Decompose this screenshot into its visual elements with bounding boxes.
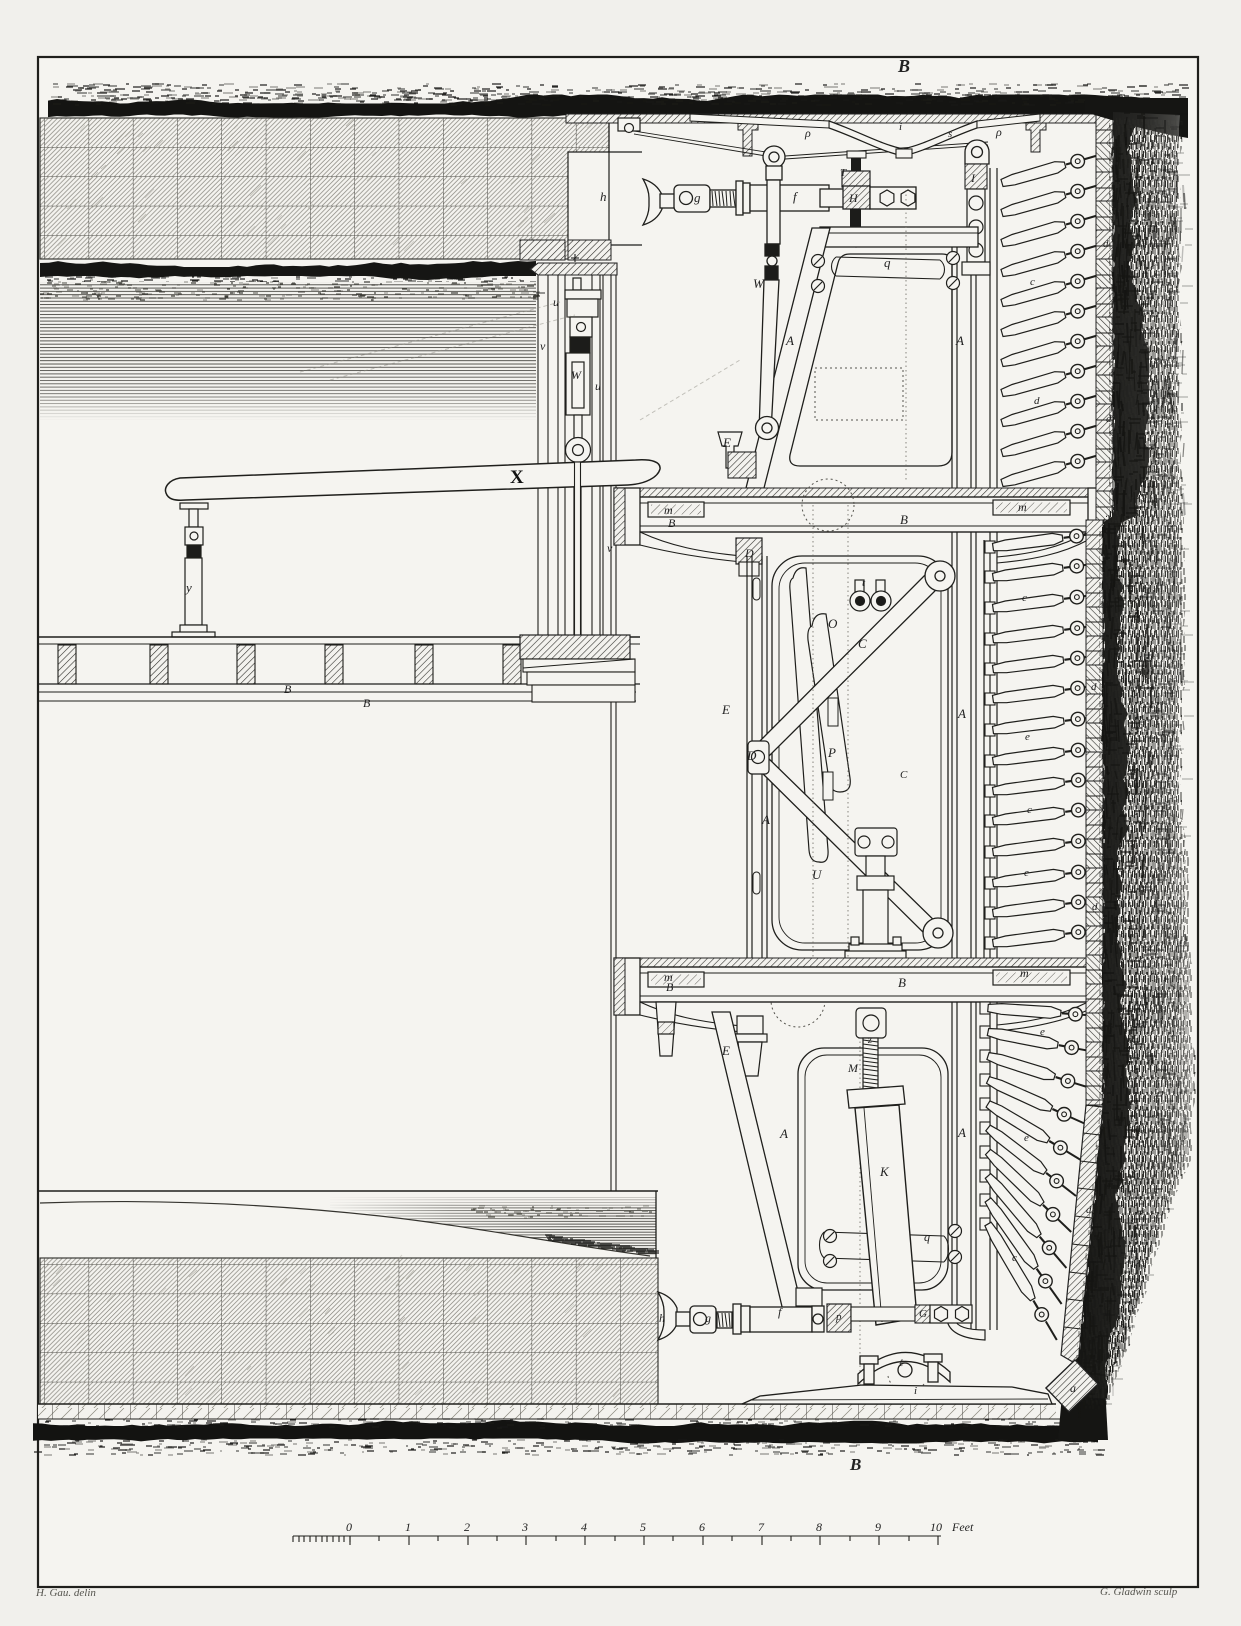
svg-text:6: 6 [699,1520,705,1534]
svg-text:G. Gladwin sculp: G. Gladwin sculp [1100,1586,1178,1598]
svg-text:B: B [668,516,676,530]
svg-text:B: B [666,980,674,994]
svg-text:c: c [1022,592,1027,604]
svg-text:B: B [849,1455,861,1474]
svg-text:C: C [858,636,867,651]
svg-text:A: A [779,1126,788,1141]
svg-text:s: s [948,128,952,140]
svg-text:5: 5 [640,1520,646,1534]
svg-text:9: 9 [875,1520,881,1534]
svg-text:B: B [284,682,292,696]
svg-text:ℓ: ℓ [899,1358,903,1369]
svg-text:B: B [897,56,910,76]
svg-text:W: W [753,276,765,291]
svg-text:m: m [1018,500,1027,514]
svg-text:A: A [785,333,794,348]
svg-text:G: G [919,1308,927,1320]
svg-text:p: p [835,1311,842,1323]
svg-text:B: B [898,975,906,990]
svg-text:q: q [924,1230,930,1244]
svg-text:h: h [600,189,607,204]
svg-text:q: q [884,255,891,270]
svg-text:g: g [694,190,701,205]
svg-text:W: W [571,368,582,382]
svg-text:C: C [900,769,908,781]
svg-text:T: T [840,167,847,179]
svg-text:B: B [363,696,371,710]
svg-text:A: A [957,706,966,721]
svg-text:d: d [1086,1204,1092,1216]
svg-text:a: a [1070,1381,1076,1395]
svg-text:e: e [1024,1132,1029,1144]
svg-text:c: c [1012,1252,1017,1264]
svg-text:h: h [659,1311,665,1325]
svg-text:O: O [828,616,838,631]
svg-text:A: A [761,812,770,827]
svg-text:u: u [595,379,601,393]
svg-text:7: 7 [758,1520,765,1534]
svg-text:P: P [827,745,836,760]
svg-text:10: 10 [930,1520,942,1534]
svg-text:E: E [721,1043,730,1058]
svg-text:0: 0 [346,1520,352,1534]
svg-text:d: d [1106,413,1112,425]
svg-text:e: e [1024,867,1029,879]
svg-text:y: y [184,580,192,595]
svg-text:E: E [721,702,730,717]
svg-text:1: 1 [405,1520,411,1534]
svg-text:D: D [744,546,754,560]
svg-text:ρ: ρ [995,125,1002,139]
svg-text:z: z [867,1035,872,1046]
svg-text:3: 3 [521,1520,528,1534]
svg-text:i: i [899,121,902,133]
svg-text:ρ: ρ [804,126,811,140]
svg-text:c: c [1027,804,1032,816]
svg-text:i: i [914,1385,917,1397]
svg-text:K: K [879,1164,890,1179]
svg-text:e: e [1025,731,1030,743]
svg-text:2: 2 [464,1520,470,1534]
svg-text:m: m [664,503,673,517]
svg-text:H. Gau. delin: H. Gau. delin [35,1587,96,1599]
svg-text:Feet: Feet [951,1520,974,1534]
svg-text:M: M [847,1061,859,1075]
svg-text:B: B [900,512,908,527]
svg-text:m: m [1020,966,1029,980]
svg-text:c: c [1030,276,1035,288]
svg-text:X: X [510,467,524,488]
svg-text:d: d [1091,681,1097,693]
svg-text:A: A [955,333,964,348]
svg-text:8: 8 [816,1520,822,1534]
svg-text:4: 4 [581,1520,587,1534]
svg-text:U: U [812,867,823,882]
svg-text:v: v [607,541,613,555]
svg-text:H: H [848,191,859,205]
svg-text:g: g [705,1311,711,1325]
svg-text:e: e [1040,1026,1045,1038]
svg-text:E: E [722,435,731,450]
svg-text:d: d [1034,395,1040,407]
svg-text:D: D [746,748,757,763]
svg-text:A: A [957,1125,966,1140]
svg-text:v: v [540,339,546,353]
svg-text:d: d [1092,901,1098,913]
svg-text:d: d [1103,238,1109,250]
